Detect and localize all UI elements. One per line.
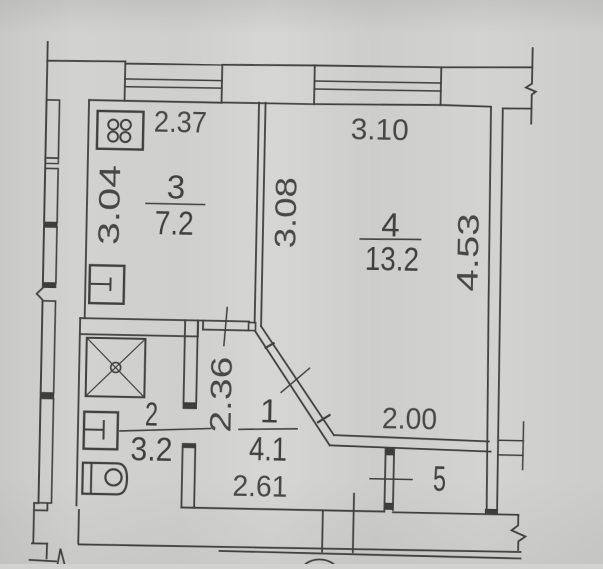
svg-text:2.36: 2.36 (204, 356, 239, 433)
svg-text:13.2: 13.2 (365, 240, 420, 278)
svg-text:2.00: 2.00 (382, 402, 438, 436)
svg-text:7.2: 7.2 (154, 204, 194, 242)
svg-text:3.04: 3.04 (93, 165, 128, 246)
svg-text:2.61: 2.61 (232, 470, 288, 504)
svg-text:4.53: 4.53 (452, 213, 487, 292)
svg-text:5: 5 (433, 460, 447, 499)
svg-text:3.10: 3.10 (350, 113, 409, 147)
svg-text:4.1: 4.1 (249, 430, 288, 468)
svg-text:3: 3 (166, 168, 185, 205)
svg-text:4: 4 (381, 206, 400, 243)
svg-text:3.08: 3.08 (269, 177, 303, 249)
svg-text:3.2: 3.2 (130, 430, 173, 468)
svg-text:2: 2 (145, 395, 159, 432)
svg-text:1: 1 (260, 392, 279, 429)
svg-text:2.37: 2.37 (154, 106, 208, 140)
